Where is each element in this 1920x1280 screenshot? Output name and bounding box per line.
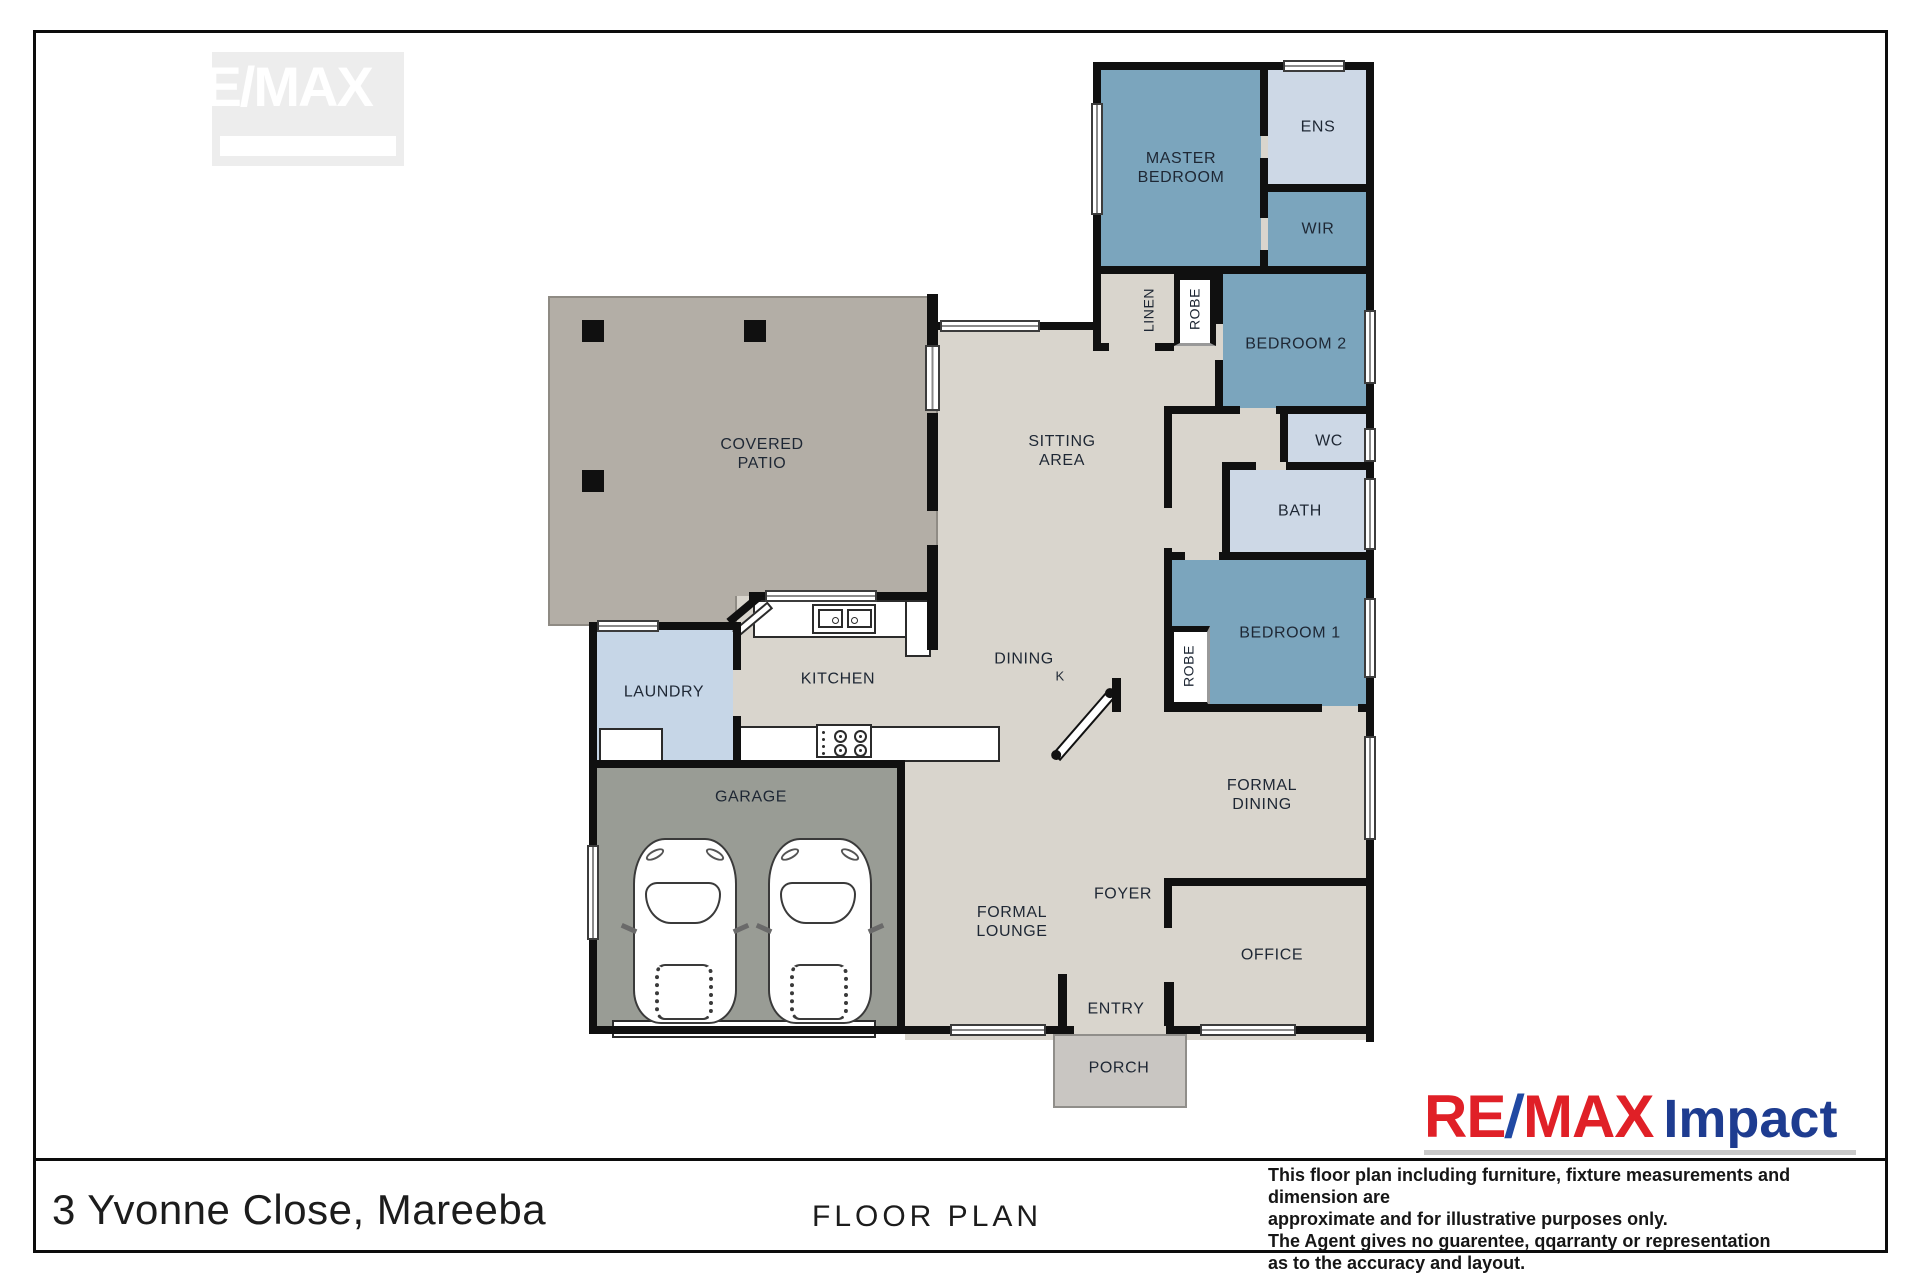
logo-impact: Impact [1663, 1088, 1837, 1150]
page-frame [33, 30, 1888, 1253]
logo-max: MAX [1523, 1082, 1653, 1151]
floor-plan-page: RE/MAX [0, 0, 1920, 1280]
disclaimer-text: This floor plan including furniture, fix… [1268, 1164, 1868, 1274]
logo-underline [1424, 1150, 1856, 1155]
footer-divider [33, 1158, 1888, 1161]
remax-impact-logo: RE/MAXImpact [1424, 1082, 1837, 1151]
page-title: FLOOR PLAN [812, 1200, 1042, 1234]
property-address: 3 Yvonne Close, Mareeba [52, 1186, 546, 1234]
logo-re: RE [1424, 1082, 1505, 1151]
